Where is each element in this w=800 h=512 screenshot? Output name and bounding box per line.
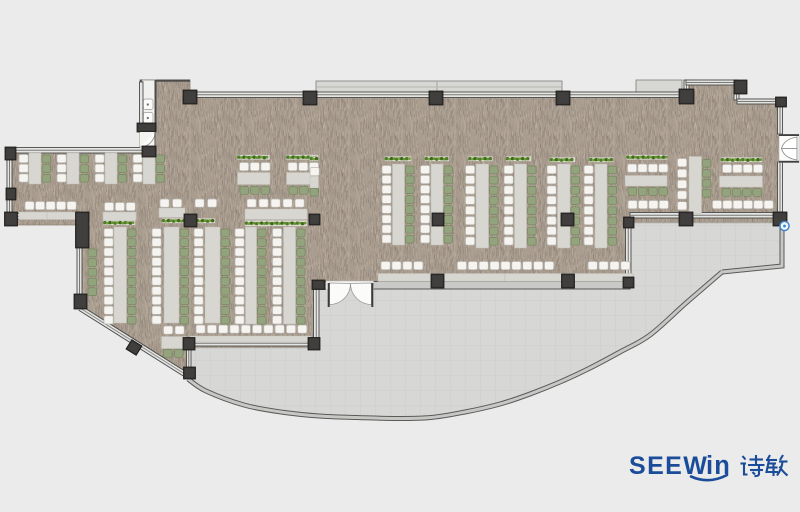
svg-text:SEEW: SEEW: [629, 452, 708, 480]
